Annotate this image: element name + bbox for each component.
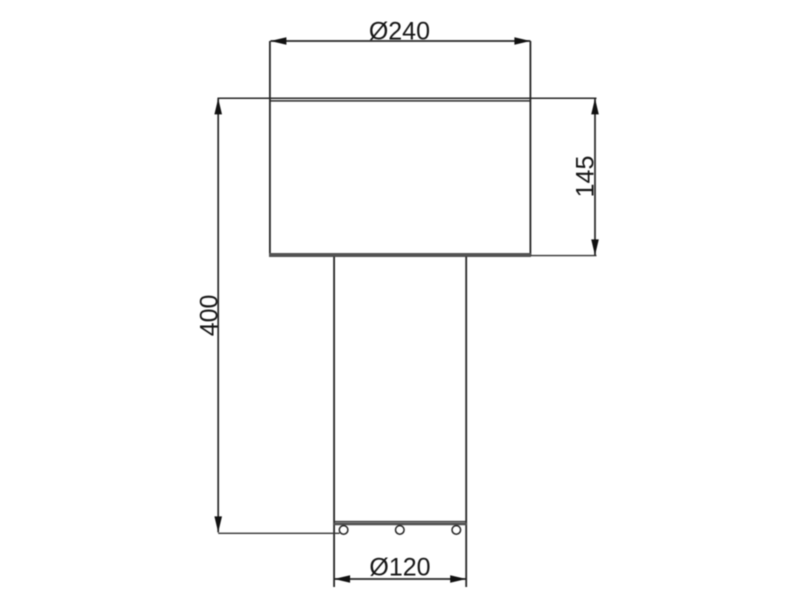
svg-text:400: 400 <box>196 295 224 337</box>
svg-text:Ø120: Ø120 <box>369 553 430 581</box>
svg-text:Ø240: Ø240 <box>369 18 430 46</box>
svg-text:145: 145 <box>572 156 600 198</box>
